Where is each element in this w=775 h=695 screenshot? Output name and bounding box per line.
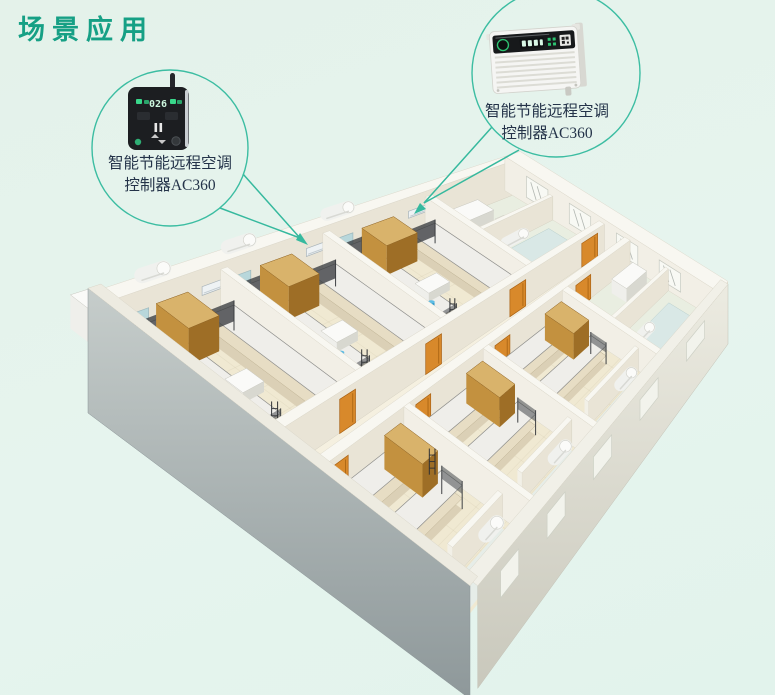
callout-right-label-line1: 智能节能远程空调 <box>485 102 609 120</box>
connector-line <box>243 174 300 238</box>
callout-left-label-line1: 智能节能远程空调 <box>108 154 232 172</box>
ac-remote-controller-box-icon <box>486 22 588 101</box>
callout-left-label-line2: 控制器AC360 <box>124 176 216 194</box>
smart-thermostat-panel-icon: 026 <box>128 73 189 150</box>
callout-right: 智能节能远程空调 控制器AC360 <box>472 0 640 157</box>
page-title: 场景应用 <box>18 8 154 47</box>
callout-right-label-line2: 控制器AC360 <box>501 124 593 142</box>
connector-line <box>220 208 300 238</box>
scene-application-page: 026 智能节能远程空调 控制器AC360 <box>0 0 775 695</box>
dormitory-isometric-floorplan <box>70 151 728 695</box>
thermostat-display: 026 <box>149 99 167 110</box>
callout-left: 026 智能节能远程空调 控制器AC360 <box>92 70 248 226</box>
scene-canvas: 026 智能节能远程空调 控制器AC360 <box>0 0 775 695</box>
